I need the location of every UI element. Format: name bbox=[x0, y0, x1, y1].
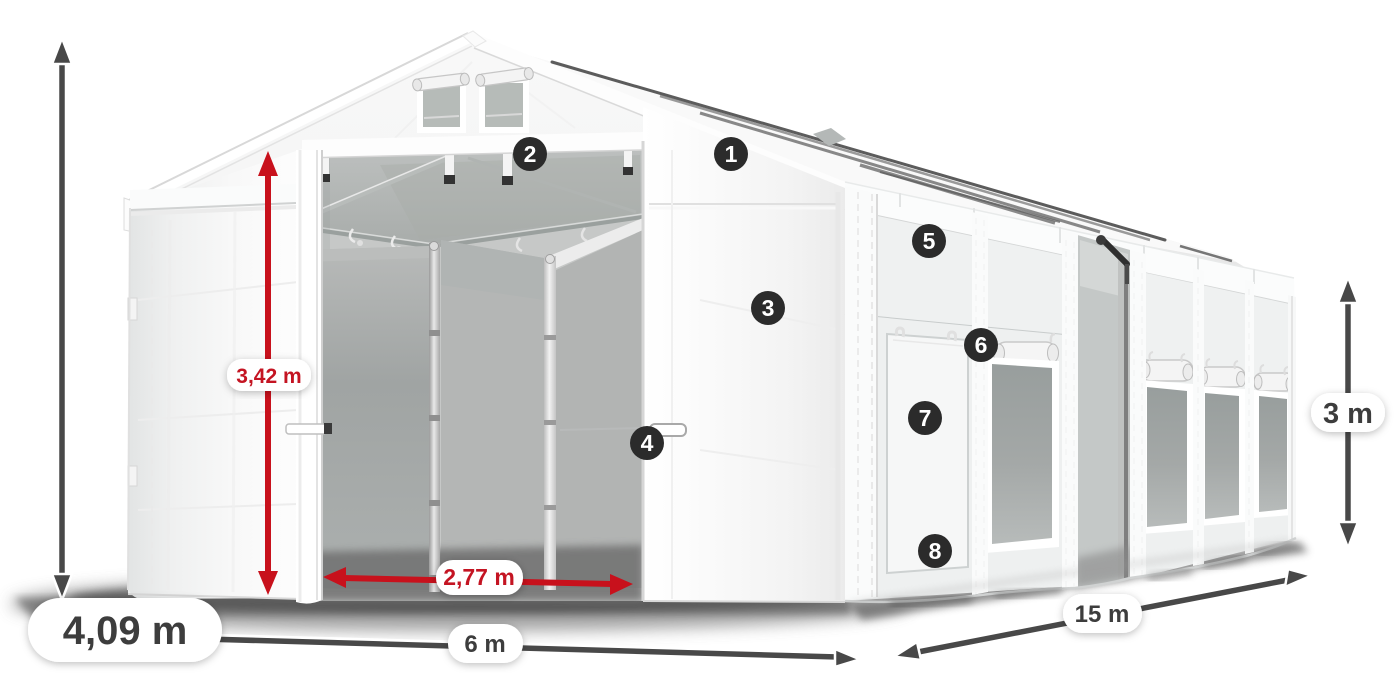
svg-text:3,42 m: 3,42 m bbox=[236, 365, 301, 388]
svg-text:3: 3 bbox=[762, 295, 775, 321]
svg-text:3 m: 3 m bbox=[1323, 398, 1373, 430]
svg-text:8: 8 bbox=[929, 538, 942, 564]
svg-text:2,77 m: 2,77 m bbox=[443, 564, 515, 590]
svg-text:1: 1 bbox=[725, 141, 738, 167]
svg-text:4,09 m: 4,09 m bbox=[63, 609, 188, 653]
svg-text:6: 6 bbox=[975, 332, 988, 358]
svg-text:6 m: 6 m bbox=[464, 631, 505, 658]
svg-text:5: 5 bbox=[923, 228, 936, 254]
svg-text:7: 7 bbox=[919, 405, 932, 431]
svg-text:2: 2 bbox=[524, 141, 537, 167]
svg-text:4: 4 bbox=[641, 430, 654, 456]
svg-text:15 m: 15 m bbox=[1075, 601, 1130, 628]
